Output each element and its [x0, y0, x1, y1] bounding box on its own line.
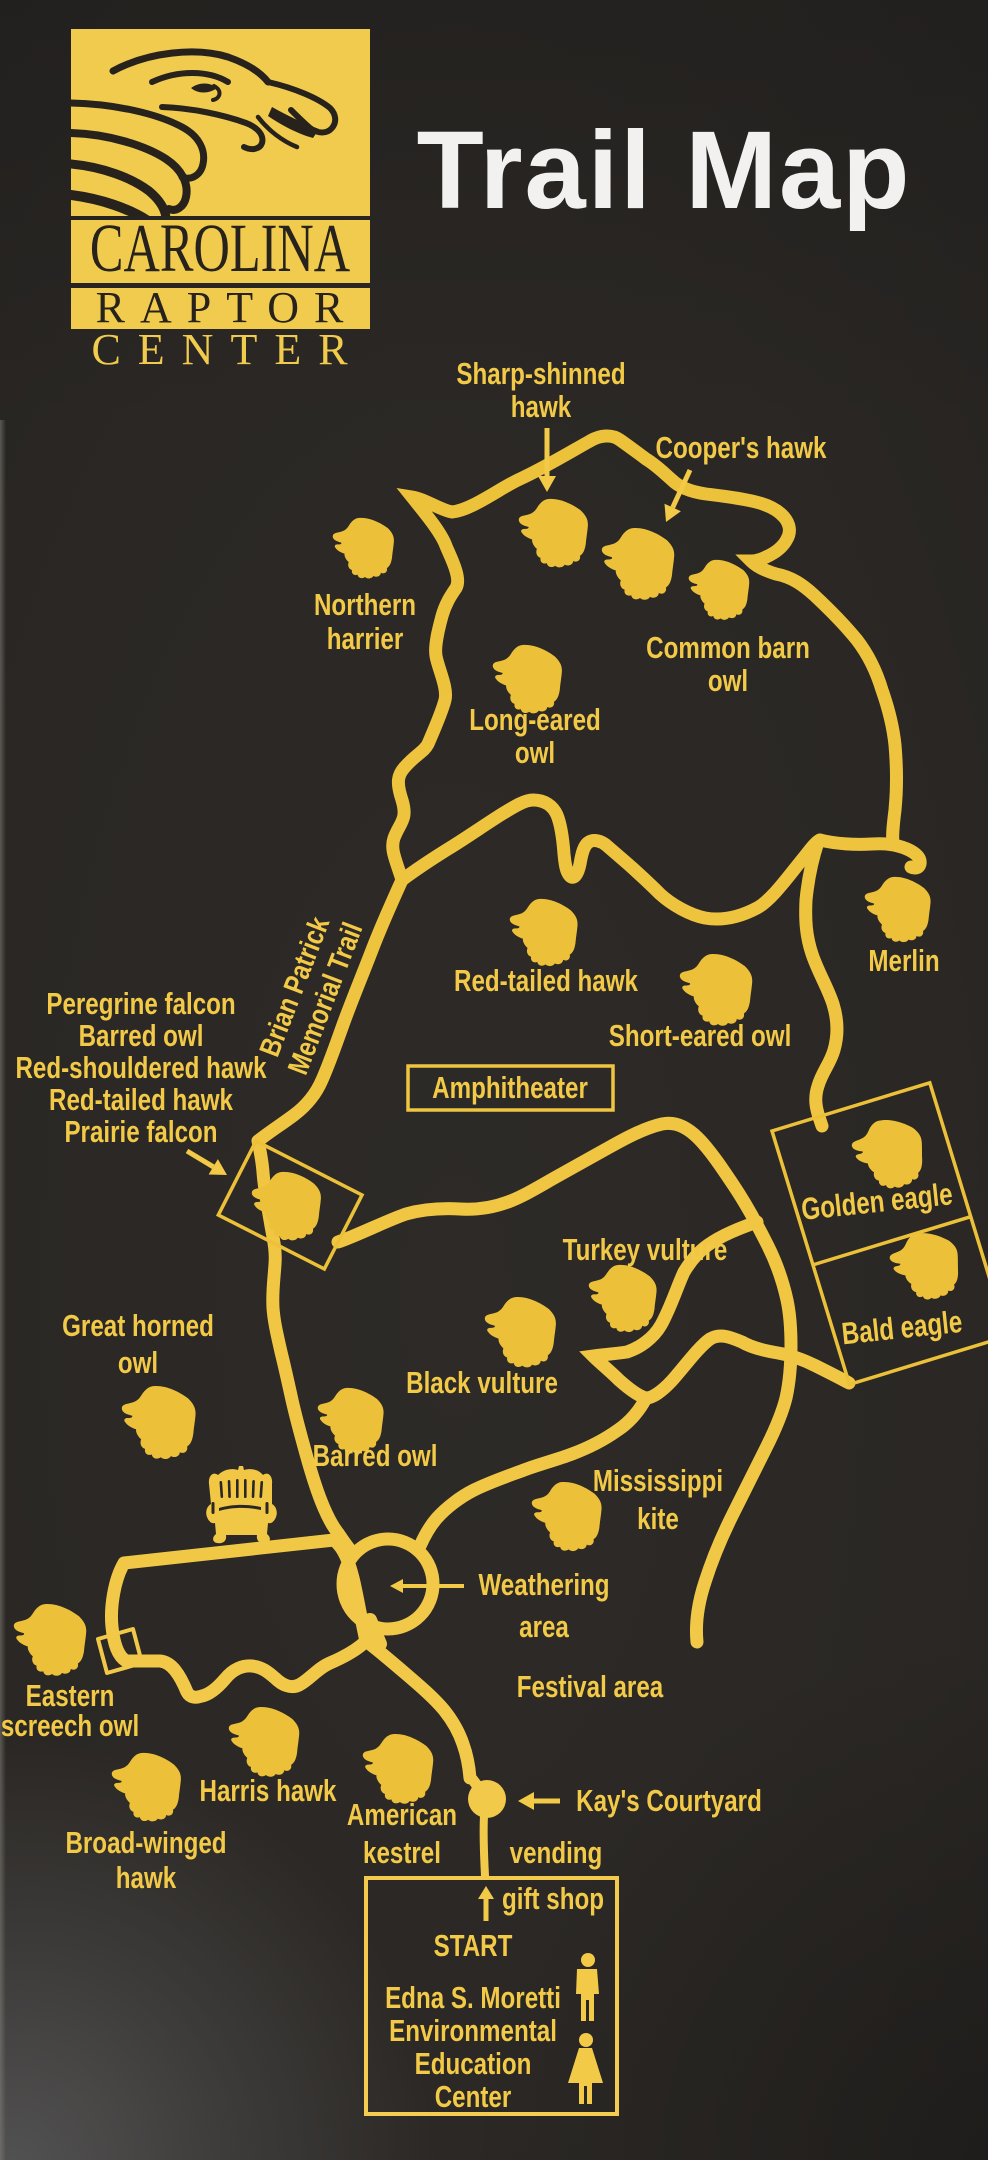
svg-text:Trail Map: Trail Map [417, 109, 912, 232]
svg-text:Prairie falcon: Prairie falcon [64, 1114, 217, 1149]
svg-text:Red-tailed hawk: Red-tailed hawk [454, 963, 638, 998]
svg-text:Common barn: Common barn [646, 630, 810, 665]
svg-text:Education: Education [415, 2046, 532, 2081]
svg-text:Barred owl: Barred owl [313, 1438, 438, 1473]
svg-text:Barred owl: Barred owl [79, 1018, 204, 1053]
svg-text:owl: owl [708, 663, 748, 698]
svg-text:Merlin: Merlin [868, 943, 939, 978]
svg-text:Center: Center [435, 2079, 512, 2114]
svg-text:owl: owl [515, 735, 555, 770]
svg-text:Peregrine falcon: Peregrine falcon [46, 986, 235, 1021]
svg-text:CENTER: CENTER [91, 325, 364, 374]
svg-text:owl: owl [118, 1345, 158, 1380]
svg-text:Cooper's hawk: Cooper's hawk [656, 430, 827, 465]
svg-text:hawk: hawk [511, 389, 572, 424]
svg-text:kite: kite [637, 1501, 679, 1536]
svg-text:kestrel: kestrel [363, 1835, 441, 1870]
svg-text:Harris hawk: Harris hawk [199, 1773, 336, 1808]
svg-text:Red-shouldered hawk: Red-shouldered hawk [15, 1050, 267, 1085]
svg-text:Turkey vulture: Turkey vulture [563, 1232, 728, 1267]
svg-text:Amphitheater: Amphitheater [432, 1070, 588, 1105]
svg-text:harrier: harrier [327, 621, 404, 656]
svg-text:Short-eared owl: Short-eared owl [609, 1018, 792, 1053]
svg-text:screech owl: screech owl [1, 1708, 139, 1743]
svg-text:Mississippi: Mississippi [593, 1463, 723, 1498]
svg-text:START: START [434, 1928, 513, 1963]
svg-text:Long-eared: Long-eared [469, 702, 601, 737]
svg-text:area: area [519, 1609, 569, 1644]
svg-text:Great horned: Great horned [62, 1308, 214, 1343]
svg-text:Northern: Northern [314, 587, 416, 622]
svg-text:CAROLINA: CAROLINA [90, 210, 350, 287]
svg-text:Festival area: Festival area [517, 1669, 664, 1704]
svg-text:Broad-winged: Broad-winged [65, 1825, 226, 1860]
svg-text:Red-tailed hawk: Red-tailed hawk [49, 1082, 233, 1117]
svg-text:gift shop: gift shop [502, 1881, 604, 1916]
svg-text:Edna S. Moretti: Edna S. Moretti [385, 1980, 561, 2015]
svg-text:American: American [347, 1797, 457, 1832]
svg-text:Sharp-shinned: Sharp-shinned [456, 356, 625, 391]
svg-text:Kay's Courtyard: Kay's Courtyard [576, 1783, 762, 1818]
svg-text:Environmental: Environmental [389, 2013, 557, 2048]
svg-text:Weathering: Weathering [478, 1567, 609, 1602]
svg-text:vending: vending [510, 1835, 603, 1870]
svg-text:Black vulture: Black vulture [406, 1365, 558, 1400]
svg-text:hawk: hawk [116, 1860, 177, 1895]
